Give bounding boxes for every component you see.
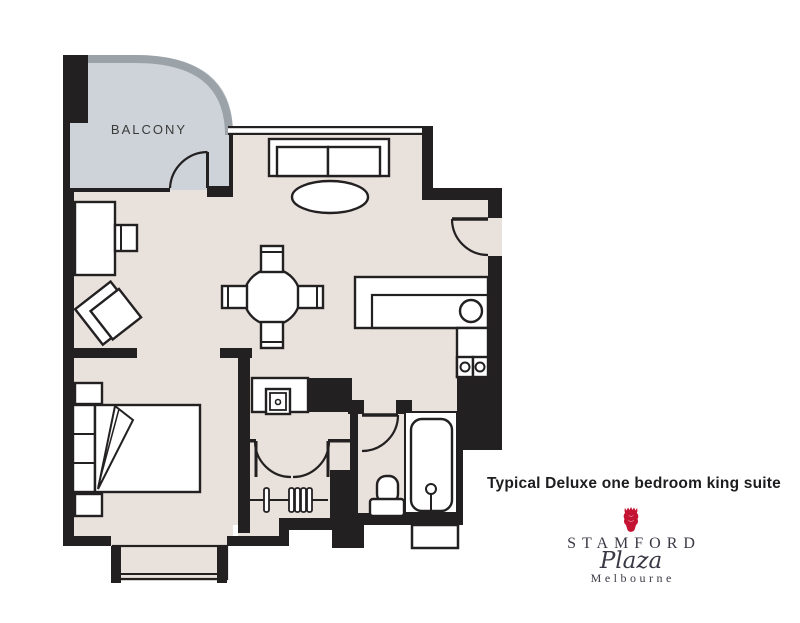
cooktop-burner-right xyxy=(476,363,485,372)
wall-bath-left xyxy=(350,412,358,525)
dining-chair-right xyxy=(298,286,323,308)
dining-chair-bottom xyxy=(261,322,283,348)
kitchen-sink xyxy=(460,300,482,322)
wall-bedroom-divider xyxy=(63,348,137,358)
wall-right-mid xyxy=(488,256,502,378)
wall-vanity-block xyxy=(306,378,352,412)
wall-bath-jamb-left xyxy=(348,400,364,414)
coffee-table xyxy=(292,181,368,213)
desk-chair xyxy=(115,225,137,251)
dining-chair-left xyxy=(222,286,247,308)
bed-headboard xyxy=(73,405,95,492)
nightstand-bottom xyxy=(75,494,102,516)
wall-bedroom-bottom-right xyxy=(227,536,289,546)
brand-script: Plaza xyxy=(531,551,731,572)
wall-closet-top-right xyxy=(328,439,352,443)
wall-closet-top-left xyxy=(238,439,256,443)
sofa-cushion-right xyxy=(328,147,380,176)
brand-city: Melbourne xyxy=(531,572,731,585)
crown-icon xyxy=(618,506,644,533)
window-line-inner xyxy=(228,133,433,135)
wall-right-upper xyxy=(488,188,502,218)
desk xyxy=(75,202,115,275)
wall-balcony-left-thick xyxy=(63,55,88,123)
floorplan-page: BALCONY Typical Deluxe one bedroom king … xyxy=(0,0,800,623)
wall-balcony-left-thin xyxy=(63,123,70,192)
sofa-cushion-left xyxy=(277,147,328,176)
toilet-base xyxy=(370,499,404,516)
wall-right-mass xyxy=(457,377,502,450)
wall-balcony-bottom xyxy=(63,188,170,192)
service-duct xyxy=(412,525,458,548)
brand-logo: STAMFORD Plaza Melbourne xyxy=(531,506,731,585)
cooktop-burner-left xyxy=(461,363,470,372)
balcony-label: BALCONY xyxy=(95,122,203,137)
nightstand-top xyxy=(75,383,102,404)
plan-caption: Typical Deluxe one bedroom king suite xyxy=(487,475,783,493)
dining-chair-top xyxy=(261,246,283,272)
bathtub-drain xyxy=(426,484,436,494)
window-line-outer xyxy=(228,126,433,128)
wall-balcony-glass xyxy=(229,127,233,188)
dining-table xyxy=(244,269,300,325)
vanity-drain xyxy=(276,400,281,405)
